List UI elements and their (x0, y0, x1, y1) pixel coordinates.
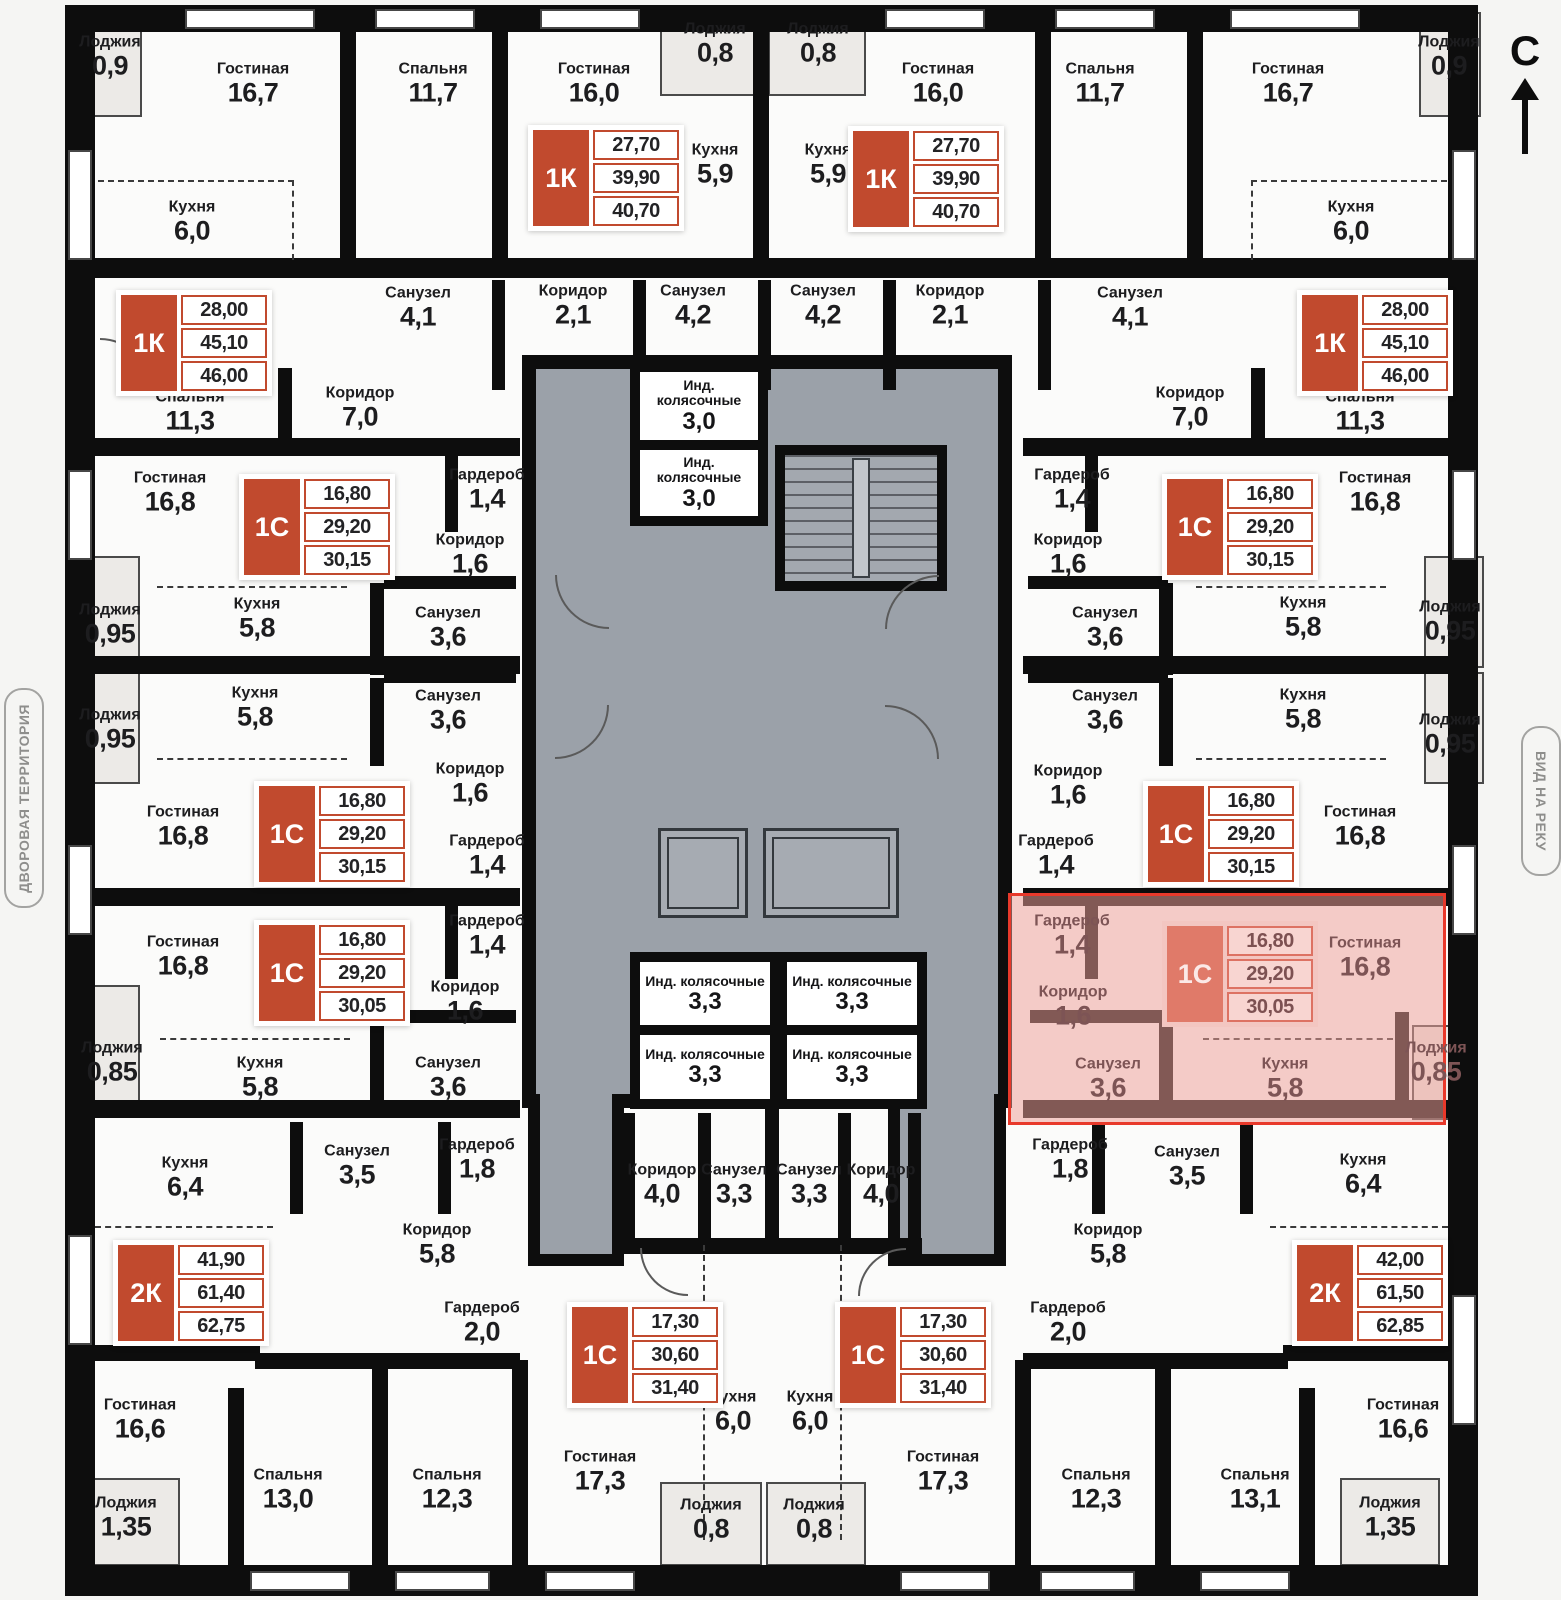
apartment-area-value: 45,10 (1362, 328, 1448, 358)
apartment-type-badge: 2К (1297, 1245, 1353, 1341)
room-label: Коридор1,6 (1034, 763, 1103, 810)
river-side-label: ВИД НА РЕКУ (1521, 726, 1561, 876)
room-name: Инд. колясочные (640, 378, 758, 409)
apartment-area-value: 16,80 (304, 479, 390, 509)
room-name: Гостиная (1367, 1397, 1439, 1415)
kitchen-zone-dashed-line (292, 180, 294, 260)
room-label: Лоджия0,8 (680, 1497, 741, 1544)
wall (1283, 1345, 1448, 1361)
wall (370, 678, 384, 766)
room-label: Гардероб1,4 (1034, 467, 1110, 514)
wall (1015, 1360, 1031, 1566)
apartment-type-badge: 1С (1167, 926, 1223, 1022)
room-area: 0,8 (680, 1515, 741, 1543)
room-name: Коридор (326, 385, 395, 403)
apartment-card[interactable]: 1К28,0045,1046,00 (1297, 290, 1453, 396)
room-area: 17,3 (907, 1467, 979, 1495)
apartment-card[interactable]: 1К27,7039,9040,70 (528, 125, 684, 231)
window (545, 1571, 635, 1591)
kitchen-zone-dashed-line (98, 180, 294, 182)
room-area: 4,0 (628, 1180, 697, 1208)
room-label: Коридор7,0 (326, 385, 395, 432)
north-compass: С (1490, 30, 1560, 160)
room-label: Санузел3,5 (324, 1143, 390, 1190)
room-area: 16,8 (1339, 488, 1411, 516)
room-area: 16,8 (134, 488, 206, 516)
window (68, 150, 92, 260)
room-name: Санузел (1075, 1056, 1141, 1074)
room-area: 16,6 (1367, 1415, 1439, 1443)
room-label: Лоджия0,95 (79, 602, 140, 649)
room-area: 0,9 (79, 52, 140, 80)
apartment-area-value: 45,10 (181, 328, 267, 358)
room-name: Гостиная (902, 61, 974, 79)
room-name: Гардероб (444, 1300, 520, 1318)
apartment-areas: 27,7039,9040,70 (593, 130, 679, 226)
apartment-area-value: 29,20 (319, 958, 405, 988)
room-label: Кухня6,4 (162, 1155, 209, 1202)
room-area: 6,0 (1328, 217, 1375, 245)
room-name: Лоджия (1405, 1040, 1466, 1058)
courtyard-side-label: ДВОРОВАЯ ТЕРРИТОРИЯ (4, 688, 44, 908)
apartment-area-value: 30,60 (900, 1340, 986, 1370)
apartment-type-badge: 1С (572, 1307, 628, 1403)
wall (1038, 280, 1051, 390)
room-label: Лоджия0,95 (1419, 599, 1480, 646)
room-label: Лоджия0,9 (79, 34, 140, 81)
room-area: 3,3 (701, 1180, 767, 1208)
apartment-card[interactable]: 1С16,8029,2030,15 (254, 781, 410, 887)
room-area: 3,6 (1072, 623, 1138, 651)
wall (492, 25, 508, 258)
apartment-area-value: 17,30 (632, 1307, 718, 1337)
apartment-area-value: 29,20 (304, 512, 390, 542)
wall (278, 368, 292, 440)
apartment-areas: 16,8029,2030,05 (1227, 926, 1313, 1022)
room-label: Гостиная16,0 (558, 61, 630, 108)
room-label: Гардероб2,0 (444, 1300, 520, 1347)
room-label: Гостиная16,7 (217, 61, 289, 108)
room-area: 0,85 (1405, 1058, 1466, 1086)
room-area: 11,7 (1065, 79, 1134, 107)
window (1452, 470, 1476, 560)
room-name: Санузел (415, 1055, 481, 1073)
apartment-card[interactable]: 1С16,8029,2030,15 (1162, 474, 1318, 580)
room-label: Коридор1,6 (436, 532, 505, 579)
window (395, 1571, 490, 1591)
room-label: Лоджия0,9 (1418, 34, 1479, 81)
room-label: Кухня5,8 (237, 1055, 284, 1102)
apartment-type-badge: 2К (118, 1245, 174, 1341)
room-area: 6,4 (162, 1173, 209, 1201)
room-area: 6,4 (1340, 1170, 1387, 1198)
room-label: Санузел3,3 (776, 1162, 842, 1209)
window (1230, 9, 1360, 29)
apartment-area-value: 30,05 (319, 991, 405, 1021)
apartment-card[interactable]: 1С16,8029,2030,15 (1143, 781, 1299, 887)
room-label: Санузел4,1 (1097, 285, 1163, 332)
room-area: 0,95 (79, 620, 140, 648)
wall (1035, 25, 1051, 258)
room-label: Гостиная17,3 (564, 1449, 636, 1496)
wall (95, 888, 520, 906)
room-name: Инд. колясочные (792, 1047, 912, 1062)
room-label: Кухня6,0 (787, 1389, 834, 1436)
room-label: Кухня5,8 (232, 685, 279, 732)
room-name: Спальня (412, 1467, 481, 1485)
room-area: 0,95 (1419, 730, 1480, 758)
room-name: Гардероб (449, 913, 525, 931)
room-area: 2,1 (916, 301, 985, 329)
apartment-area-value: 41,90 (178, 1245, 264, 1275)
room-name: Коридор (1156, 385, 1225, 403)
room-label: Гардероб1,8 (1032, 1137, 1108, 1184)
room-name: Лоджия (81, 1040, 142, 1058)
room-name: Лоджия (1418, 34, 1479, 52)
room-name: Гостиная (1329, 935, 1401, 953)
room-area: 0,8 (684, 39, 745, 67)
wall (384, 670, 516, 683)
room-name: Кухня (1328, 199, 1375, 217)
room-name: Спальня (1065, 61, 1134, 79)
room-label: Коридор1,6 (436, 761, 505, 808)
room-area: 1,35 (95, 1513, 156, 1541)
room-label: Коридор2,1 (916, 283, 985, 330)
apartment-area-value: 28,00 (1362, 295, 1448, 325)
room-area: 11,3 (155, 407, 224, 435)
room-label: Гостиная16,8 (1324, 804, 1396, 851)
room-name: Гостиная (1252, 61, 1324, 79)
apartment-areas: 16,8029,2030,15 (304, 479, 390, 575)
stroller-storage-room: Инд. колясочные3,0 (640, 450, 758, 516)
window (885, 9, 985, 29)
room-label: Кухня5,8 (1280, 595, 1327, 642)
room-label: Кухня6,0 (1328, 199, 1375, 246)
room-area: 0,95 (79, 725, 140, 753)
wall (883, 280, 896, 390)
apartment-areas: 28,0045,1046,00 (1362, 295, 1448, 391)
room-name: Санузел (415, 688, 481, 706)
room-area: 5,8 (237, 1073, 284, 1101)
room-name: Санузел (660, 283, 726, 301)
room-name: Лоджия (79, 34, 140, 52)
elevator-car (772, 837, 890, 909)
apartment-area-value: 30,05 (1227, 992, 1313, 1022)
room-label: Гостиная16,0 (902, 61, 974, 108)
room-area: 1,8 (1032, 1155, 1108, 1183)
room-label: Гардероб1,4 (449, 833, 525, 880)
room-name: Санузел (701, 1162, 767, 1180)
room-area: 3,5 (1154, 1162, 1220, 1190)
room-name: Санузел (790, 283, 856, 301)
room-name: Спальня (253, 1467, 322, 1485)
window (250, 1571, 350, 1591)
apartment-area-value: 29,20 (1227, 512, 1313, 542)
room-area: 16,7 (217, 79, 289, 107)
room-name: Гостиная (147, 934, 219, 952)
room-name: Гардероб (449, 833, 525, 851)
apartment-area-value: 27,70 (913, 131, 999, 161)
room-area: 4,2 (790, 301, 856, 329)
room-label: Коридор7,0 (1156, 385, 1225, 432)
room-label: Коридор1,6 (1039, 984, 1108, 1031)
elevator-car (667, 837, 739, 909)
room-name: Кухня (787, 1389, 834, 1407)
apartment-type-badge: 1С (1148, 786, 1204, 882)
room-label: Гостиная16,6 (1367, 1397, 1439, 1444)
room-label: Кухня6,4 (1340, 1152, 1387, 1199)
apartment-card[interactable]: 2К41,9061,4062,75 (113, 1240, 269, 1346)
room-name: Гардероб (1032, 1137, 1108, 1155)
room-area: 5,8 (1262, 1074, 1309, 1102)
room-name: Инд. колясочные (645, 974, 765, 989)
room-label: Гостиная16,8 (147, 934, 219, 981)
apartment-area-value: 27,70 (593, 130, 679, 160)
stroller-storage-room: Инд. колясочные3,0 (640, 372, 758, 440)
room-name: Кухня (1280, 595, 1327, 613)
room-label: Гардероб1,4 (449, 467, 525, 514)
room-name: Коридор (403, 1222, 472, 1240)
room-name: Санузел (1072, 605, 1138, 623)
window (1200, 1571, 1290, 1591)
room-label: Гостиная17,3 (907, 1449, 979, 1496)
room-area: 7,0 (326, 403, 395, 431)
room-label: Спальня11,7 (1065, 61, 1134, 108)
apartment-area-value: 62,75 (178, 1311, 264, 1341)
room-area: 5,9 (805, 160, 852, 188)
room-area: 1,4 (1034, 485, 1110, 513)
apartment-area-value: 17,30 (900, 1307, 986, 1337)
room-area: 6,0 (710, 1407, 757, 1435)
wall (1159, 678, 1173, 766)
room-label: Коридор5,8 (1074, 1222, 1143, 1269)
room-area: 0,8 (783, 1515, 844, 1543)
apartment-card[interactable]: 1С17,3030,6031,40 (835, 1302, 991, 1408)
room-area: 5,8 (232, 703, 279, 731)
room-label: Гостиная16,6 (104, 1397, 176, 1444)
room-name: Гостиная (147, 804, 219, 822)
room-name: Коридор (628, 1162, 697, 1180)
room-area: 1,4 (1034, 931, 1110, 959)
room-name: Спальня (1220, 1467, 1289, 1485)
room-area: 13,1 (1220, 1485, 1289, 1513)
apartment-type-badge: 1К (1302, 295, 1358, 391)
apartment-area-value: 46,00 (181, 361, 267, 391)
room-name: Гардероб (1034, 913, 1110, 931)
apartment-card[interactable]: 1С16,8029,2030,15 (239, 474, 395, 580)
room-label: Кухня5,9 (805, 142, 852, 189)
kitchen-zone-dashed-line (157, 586, 347, 588)
room-area: 1,6 (431, 997, 500, 1025)
apartment-areas: 16,8029,2030,15 (1208, 786, 1294, 882)
apartment-card[interactable]: 1К28,0045,1046,00 (116, 290, 272, 396)
room-name: Инд. колясочные (640, 455, 758, 486)
room-name: Лоджия (79, 602, 140, 620)
room-name: Санузел (1097, 285, 1163, 303)
room-area: 4,0 (847, 1180, 916, 1208)
wall (340, 25, 356, 258)
room-label: Санузел3,6 (1075, 1056, 1141, 1103)
window (1452, 150, 1476, 260)
room-area: 5,8 (1280, 705, 1327, 733)
room-label: Кухня5,8 (234, 596, 281, 643)
room-label: Гардероб1,8 (439, 1137, 515, 1184)
apartment-area-value: 31,40 (632, 1373, 718, 1403)
room-label: Гардероб1,4 (1018, 833, 1094, 880)
apartment-area-value: 61,40 (178, 1278, 264, 1308)
apartment-area-value: 39,90 (913, 164, 999, 194)
stairwell (775, 445, 947, 591)
room-area: 13,0 (253, 1485, 322, 1513)
room-label: Коридор1,6 (1034, 532, 1103, 579)
apartment-areas: 27,7039,9040,70 (913, 131, 999, 227)
room-name: Гостиная (1324, 804, 1396, 822)
apartment-area-value: 30,60 (632, 1340, 718, 1370)
apartment-areas: 42,0061,5062,85 (1357, 1245, 1443, 1341)
apartment-area-value: 29,20 (1208, 819, 1294, 849)
wall (1187, 25, 1203, 258)
room-name: Инд. колясочные (792, 974, 912, 989)
apartment-type-badge: 1С (259, 925, 315, 1021)
wall (1023, 438, 1448, 456)
room-label: Гардероб1,4 (1034, 913, 1110, 960)
room-name: Инд. колясочные (645, 1047, 765, 1062)
room-area: 3,6 (1072, 706, 1138, 734)
room-label: Лоджия0,85 (1405, 1040, 1466, 1087)
room-area: 12,3 (412, 1485, 481, 1513)
room-label: Лоджия1,35 (1359, 1495, 1420, 1542)
stroller-storage-room: Инд. колясочные3,3 (787, 1035, 917, 1099)
wall (95, 1345, 260, 1361)
north-arrow-shaft (1522, 96, 1528, 154)
window (68, 845, 92, 935)
apartment-card[interactable]: 1С16,8029,2030,05 (254, 920, 410, 1026)
room-label: Лоджия1,35 (95, 1495, 156, 1542)
window (1055, 9, 1155, 29)
room-area: 4,1 (1097, 303, 1163, 331)
apartment-areas: 41,9061,4062,75 (178, 1245, 264, 1341)
room-name: Санузел (324, 1143, 390, 1161)
apartment-type-badge: 1С (1167, 479, 1223, 575)
wall (492, 280, 505, 390)
stroller-storage-room: Инд. колясочные3,3 (787, 962, 917, 1026)
window (1452, 1295, 1476, 1425)
room-area: 3,3 (688, 1062, 721, 1087)
room-area: 1,8 (439, 1155, 515, 1183)
apartment-area-value: 61,50 (1357, 1278, 1443, 1308)
room-label: Кухня6,0 (169, 199, 216, 246)
window (1452, 845, 1476, 935)
apartment-area-value: 16,80 (1208, 786, 1294, 816)
room-area: 0,9 (1418, 52, 1479, 80)
apartment-area-value: 62,85 (1357, 1311, 1443, 1341)
kitchen-zone-dashed-line (1270, 1226, 1448, 1228)
room-name: Коридор (1034, 532, 1103, 550)
room-label: Санузел3,6 (415, 1055, 481, 1102)
room-name: Лоджия (1359, 1495, 1420, 1513)
apartment-card[interactable]: 1С17,3030,6031,40 (567, 1302, 723, 1408)
room-area: 1,6 (436, 779, 505, 807)
apartment-card[interactable]: 2К42,0061,5062,85 (1292, 1240, 1448, 1346)
kitchen-zone-dashed-line (160, 1038, 350, 1040)
room-area: 3,3 (835, 989, 868, 1014)
room-name: Кухня (237, 1055, 284, 1073)
room-name: Кухня (692, 142, 739, 160)
room-area: 2,0 (444, 1318, 520, 1346)
room-label: Гостиная16,8 (147, 804, 219, 851)
room-label: Лоджия0,8 (684, 21, 745, 68)
apartment-area-value: 29,20 (1227, 959, 1313, 989)
room-name: Гостиная (104, 1397, 176, 1415)
room-label: Гостиная16,8 (1329, 935, 1401, 982)
wall (372, 1360, 388, 1566)
apartment-area-value: 39,90 (593, 163, 679, 193)
room-area: 17,3 (564, 1467, 636, 1495)
room-label: Коридор1,6 (431, 979, 500, 1026)
kitchen-zone-dashed-line (1196, 586, 1386, 588)
room-label: Санузел4,1 (385, 285, 451, 332)
wall (95, 258, 1448, 278)
room-name: Спальня (398, 61, 467, 79)
floor-plan: ДВОРОВАЯ ТЕРРИТОРИЯ ВИД НА РЕКУ С Инд. к… (0, 0, 1561, 1600)
room-label: Санузел4,2 (790, 283, 856, 330)
apartment-card[interactable]: 1К27,7039,9040,70 (848, 126, 1004, 232)
room-name: Коридор (1039, 984, 1108, 1002)
room-area: 2,1 (539, 301, 608, 329)
compass-north-label: С (1510, 30, 1540, 72)
apartment-type-badge: 1С (259, 786, 315, 882)
wall (290, 1122, 303, 1214)
room-name: Коридор (539, 283, 608, 301)
room-area: 5,8 (1280, 613, 1327, 641)
room-name: Лоджия (783, 1497, 844, 1515)
room-name: Гостиная (564, 1449, 636, 1467)
room-area: 16,7 (1252, 79, 1324, 107)
room-area: 4,1 (385, 303, 451, 331)
room-area: 3,0 (682, 486, 715, 511)
elevator-shaft (658, 828, 748, 918)
wall (758, 280, 771, 390)
room-name: Гардероб (1030, 1300, 1106, 1318)
wall (1155, 1360, 1171, 1566)
apartment-type-badge: 1К (533, 130, 589, 226)
room-area: 12,3 (1061, 1485, 1130, 1513)
room-label: Коридор2,1 (539, 283, 608, 330)
apartment-card[interactable]: 1С16,8029,2030,05 (1162, 921, 1318, 1027)
room-label: Санузел3,6 (415, 605, 481, 652)
room-area: 0,95 (1419, 617, 1480, 645)
room-area: 5,9 (692, 160, 739, 188)
room-area: 11,7 (398, 79, 467, 107)
room-name: Гардероб (1018, 833, 1094, 851)
room-name: Кухня (805, 142, 852, 160)
window (900, 1571, 990, 1591)
room-area: 0,85 (81, 1058, 142, 1086)
wall (95, 1100, 520, 1118)
wall (753, 10, 769, 258)
wall (1028, 670, 1168, 683)
room-name: Коридор (431, 979, 500, 997)
apartment-area-value: 16,80 (319, 925, 405, 955)
courtyard-side-label-text: ДВОРОВАЯ ТЕРРИТОРИЯ (16, 704, 32, 893)
room-area: 1,6 (436, 550, 505, 578)
room-area: 3,5 (324, 1161, 390, 1189)
kitchen-zone-dashed-line (1196, 758, 1386, 760)
apartment-type-badge: 1К (853, 131, 909, 227)
apartment-areas: 17,3030,6031,40 (900, 1307, 986, 1403)
room-name: Кухня (234, 596, 281, 614)
room-name: Лоджия (1419, 712, 1480, 730)
